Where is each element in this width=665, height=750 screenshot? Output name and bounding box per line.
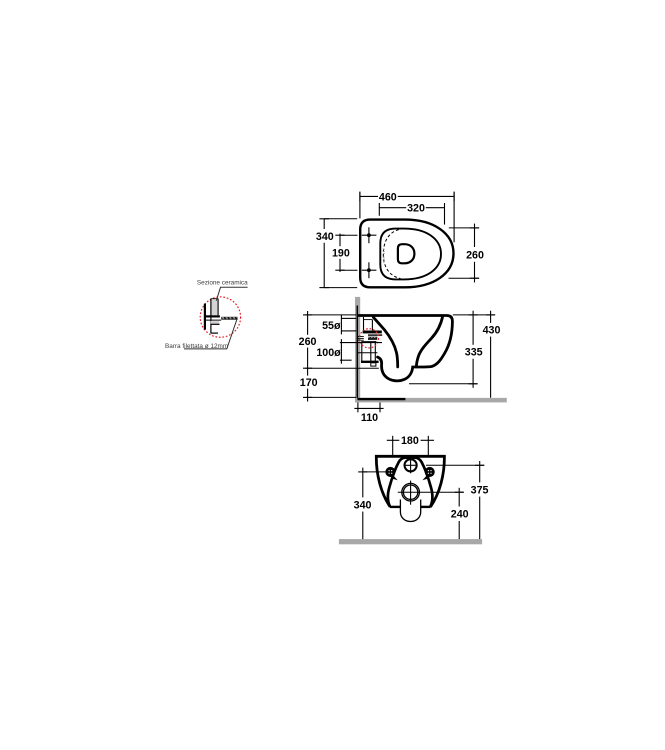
svg-text:320: 320	[407, 203, 425, 215]
svg-text:Barra filettata ø 12mm: Barra filettata ø 12mm	[165, 343, 228, 350]
svg-text:460: 460	[379, 191, 397, 203]
svg-text:375: 375	[471, 484, 489, 496]
svg-text:55ø: 55ø	[322, 320, 341, 332]
svg-text:430: 430	[483, 325, 501, 337]
svg-text:340: 340	[354, 500, 372, 512]
svg-text:110: 110	[361, 412, 378, 424]
svg-text:240: 240	[451, 509, 469, 521]
svg-text:340: 340	[316, 231, 334, 243]
svg-text:Sezione ceramica: Sezione ceramica	[197, 280, 248, 287]
svg-text:180: 180	[401, 435, 419, 447]
svg-text:190: 190	[332, 247, 350, 259]
svg-text:260: 260	[299, 336, 317, 348]
svg-text:170: 170	[300, 377, 318, 389]
svg-text:335: 335	[465, 347, 483, 359]
svg-text:100ø: 100ø	[316, 347, 341, 359]
svg-text:260: 260	[466, 250, 484, 262]
